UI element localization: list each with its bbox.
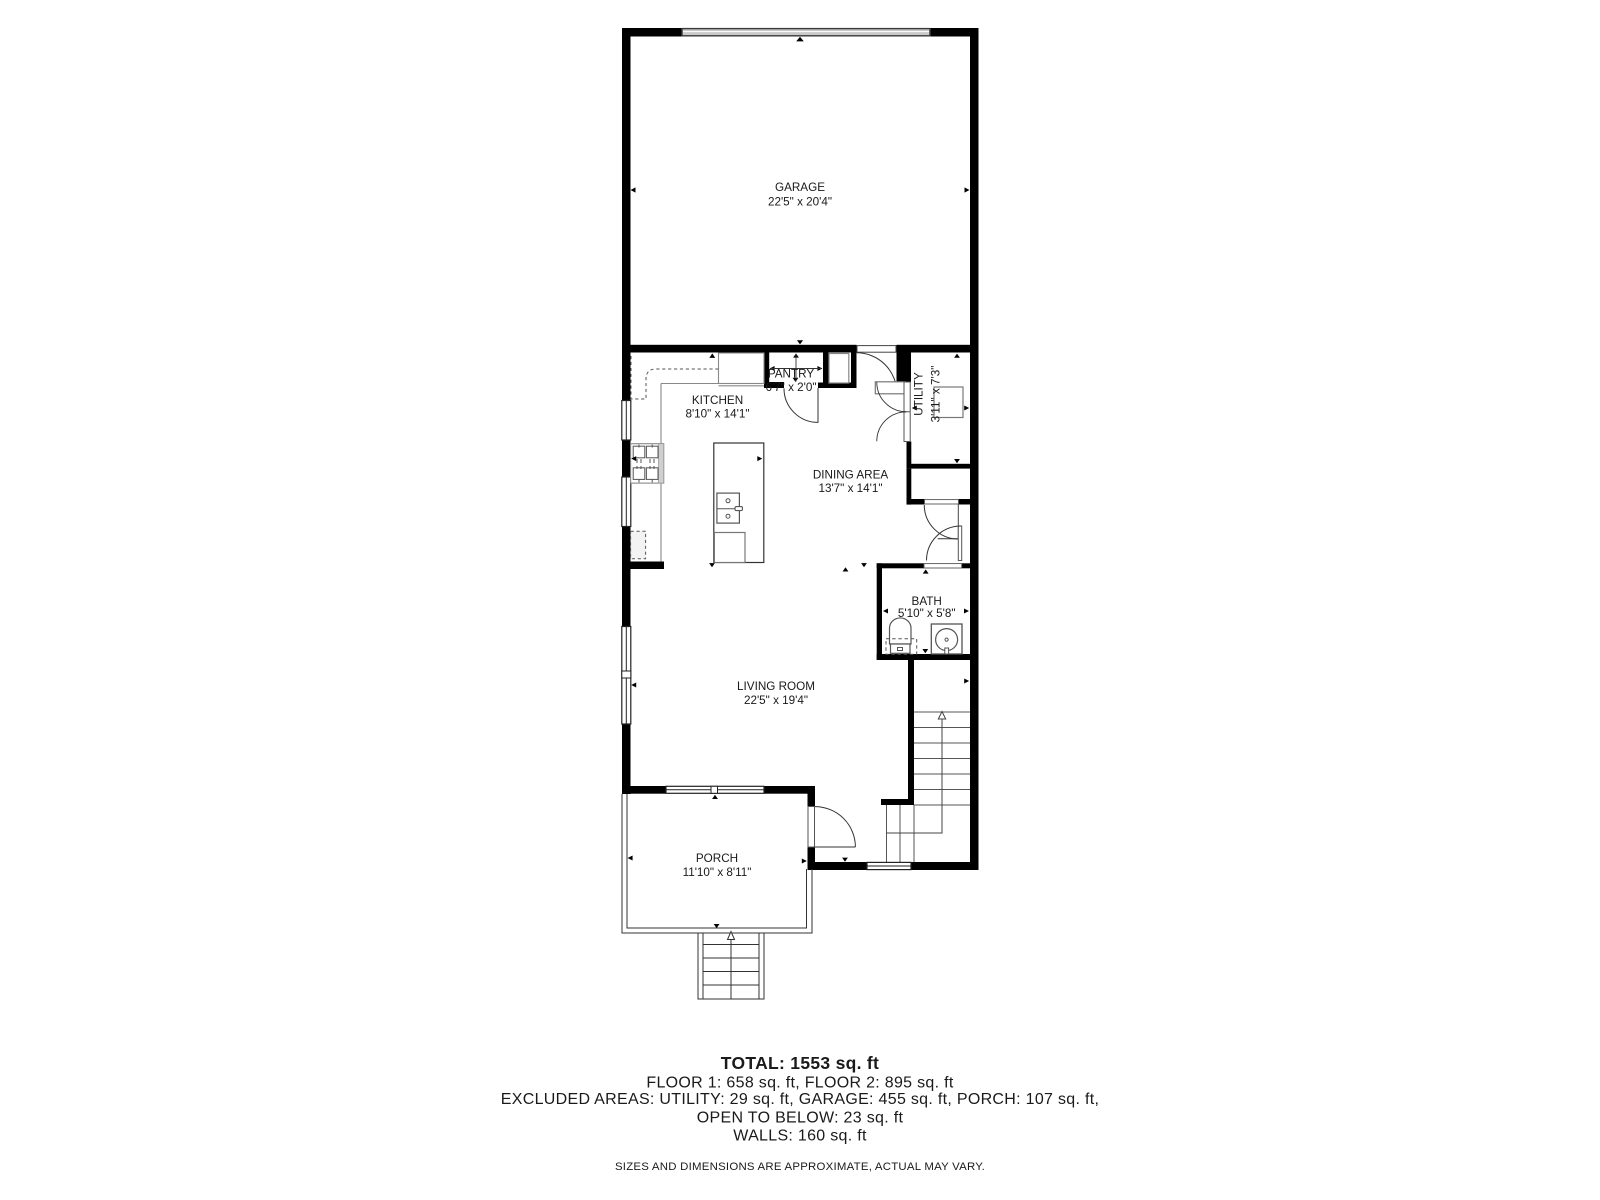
svg-text:OPEN TO BELOW: 23 sq. ft: OPEN TO BELOW: 23 sq. ft [697, 1110, 904, 1127]
svg-text:KITCHEN: KITCHEN [692, 394, 743, 407]
svg-text:5'10" x 5'8": 5'10" x 5'8" [898, 607, 956, 620]
svg-text:DINING AREA: DINING AREA [813, 469, 889, 482]
svg-text:8'10" x 14'1": 8'10" x 14'1" [685, 408, 749, 421]
svg-text:FLOOR 1: 658 sq. ft, FLOOR 2:: FLOOR 1: 658 sq. ft, FLOOR 2: 895 sq. ft [646, 1075, 953, 1092]
svg-text:3'11" x 7'3": 3'11" x 7'3" [930, 366, 943, 423]
svg-text:UTILITY: UTILITY [913, 372, 926, 416]
svg-text:WALLS: 160 sq. ft: WALLS: 160 sq. ft [733, 1128, 867, 1145]
svg-text:PANTRY: PANTRY [768, 368, 815, 381]
svg-text:SIZES AND DIMENSIONS ARE APPRO: SIZES AND DIMENSIONS ARE APPROXIMATE, AC… [615, 1161, 985, 1173]
svg-text:22'5" x 20'4": 22'5" x 20'4" [768, 196, 832, 209]
svg-text:TOTAL: 1553 sq. ft: TOTAL: 1553 sq. ft [721, 1053, 879, 1073]
svg-text:LIVING ROOM: LIVING ROOM [737, 680, 815, 693]
svg-text:13'7" x 14'1": 13'7" x 14'1" [818, 482, 882, 495]
svg-text:11'10" x 8'11": 11'10" x 8'11" [683, 866, 752, 879]
svg-text:EXCLUDED AREAS: UTILITY: 29 sq: EXCLUDED AREAS: UTILITY: 29 sq. ft, GARA… [501, 1091, 1099, 1108]
svg-text:6'7" x 2'0": 6'7" x 2'0" [765, 381, 816, 394]
svg-text:GARAGE: GARAGE [775, 181, 825, 194]
svg-text:22'5" x 19'4": 22'5" x 19'4" [744, 694, 808, 707]
svg-text:PORCH: PORCH [696, 852, 738, 865]
